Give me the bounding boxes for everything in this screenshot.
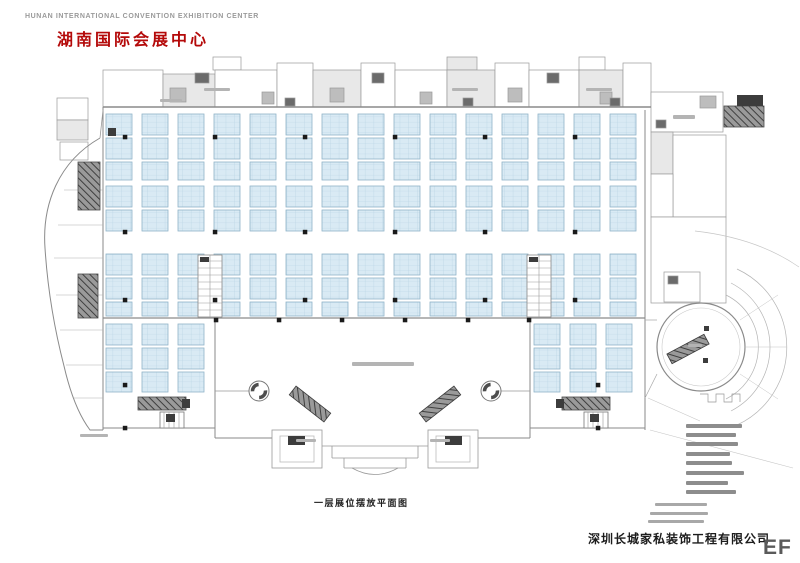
booth-block [322, 254, 348, 275]
chinese-title: 湖南国际会展中心 [57, 26, 209, 50]
booth-block [610, 210, 636, 231]
watermark-text: EF [763, 536, 792, 560]
booth-block [534, 348, 560, 369]
booth-block [286, 210, 312, 231]
fixture [737, 95, 763, 106]
booth-block [178, 186, 204, 207]
room [330, 88, 344, 102]
legend-note-line [686, 433, 736, 437]
pillar [596, 426, 601, 431]
pillar [303, 135, 308, 140]
pillar [213, 135, 218, 140]
booth-block [250, 254, 276, 275]
booth-block [142, 210, 168, 231]
pillar [123, 230, 128, 235]
booth-block [606, 324, 632, 345]
booth-block [178, 324, 204, 345]
room [57, 98, 88, 120]
room [195, 73, 209, 83]
small-stairs [160, 412, 608, 428]
booth-block [142, 114, 168, 135]
booth-block [430, 138, 456, 159]
booth-block [142, 162, 168, 180]
booth-block [610, 114, 636, 135]
booth-block [142, 278, 168, 299]
booth-block [430, 254, 456, 275]
pillar [527, 318, 532, 323]
pillar [213, 298, 218, 303]
pillar [466, 318, 471, 323]
booth-block [178, 210, 204, 231]
illegible-label [80, 434, 108, 437]
booth-block [142, 324, 168, 345]
booth-block [286, 138, 312, 159]
illegible-label [430, 439, 450, 442]
booth-block [214, 114, 240, 135]
booth-block [534, 372, 560, 392]
room [651, 132, 673, 174]
booth-block [606, 348, 632, 369]
booth-block [250, 186, 276, 207]
english-title: HUNAN INTERNATIONAL CONVENTION EXHIBITIO… [25, 13, 259, 20]
booth-block [286, 278, 312, 299]
booth-block [570, 324, 596, 345]
booth-block [286, 186, 312, 207]
booth-block [322, 114, 348, 135]
booth-block [106, 138, 132, 159]
room [579, 57, 605, 70]
illegible-label [296, 439, 316, 442]
room [651, 174, 673, 217]
footer-note-line [650, 512, 708, 515]
room [60, 142, 88, 160]
escalator-icon [289, 386, 330, 422]
booth-block [142, 138, 168, 159]
room [673, 135, 726, 217]
booth-block [502, 162, 528, 180]
booth-block [106, 254, 132, 275]
legend-note-line [686, 490, 736, 494]
pillar [403, 318, 408, 323]
room [420, 92, 432, 104]
booth-block [502, 138, 528, 159]
booth-block [106, 324, 132, 345]
booth-block [358, 114, 384, 135]
pillar [573, 230, 578, 235]
booth-block [430, 210, 456, 231]
booth-block [394, 114, 420, 135]
booth-block [538, 114, 564, 135]
fixture [556, 399, 564, 408]
legend-note-line [686, 481, 728, 485]
booth-block [394, 302, 420, 316]
booth-block [466, 254, 492, 275]
room [262, 92, 274, 104]
booth-block [430, 162, 456, 180]
fixture [200, 257, 209, 262]
booth-block [250, 210, 276, 231]
drawing-caption: 一层展位摆放平面图 [314, 496, 409, 509]
booth-block [394, 210, 420, 231]
pillar [393, 230, 398, 235]
legend-note-line [686, 442, 738, 446]
booth-block [574, 210, 600, 231]
booth-block [358, 278, 384, 299]
booth-block [250, 138, 276, 159]
illegible-label [160, 99, 182, 102]
pillar [123, 383, 128, 388]
pillar [596, 383, 601, 388]
company-name: 深圳长城家私装饰工程有限公司 [588, 530, 770, 547]
pillar [277, 318, 282, 323]
floor-plan-drawing [0, 0, 800, 563]
pillar [483, 135, 488, 140]
pillar [123, 426, 128, 431]
booth-block [358, 254, 384, 275]
escalators [289, 334, 709, 422]
room [57, 120, 88, 140]
booth-block [250, 162, 276, 180]
booth-block [358, 162, 384, 180]
illegible-label [452, 88, 478, 91]
booth-block [430, 302, 456, 316]
room [103, 70, 163, 107]
booth-block [214, 186, 240, 207]
west-curved-wing [45, 110, 103, 430]
booth-block [250, 302, 276, 316]
footer-note-line [655, 503, 707, 506]
booth-block [142, 186, 168, 207]
booth-block [570, 372, 596, 392]
illegible-label [688, 344, 702, 347]
staircase-icon [78, 162, 100, 210]
booth-block [106, 186, 132, 207]
fixture [166, 414, 175, 422]
pillar [393, 135, 398, 140]
fixture [108, 128, 116, 136]
illegible-label [673, 115, 695, 119]
legend-note-line [686, 461, 732, 465]
booth-block [574, 138, 600, 159]
booth-block [538, 210, 564, 231]
booth-block [538, 186, 564, 207]
staircase-icon [138, 397, 186, 410]
booth-block [286, 162, 312, 180]
booth-block [106, 348, 132, 369]
booth-block [502, 114, 528, 135]
room [623, 63, 651, 107]
booth-block [394, 278, 420, 299]
booth-block [358, 138, 384, 159]
booth-block [358, 210, 384, 231]
booth-block [574, 254, 600, 275]
booth-block [502, 302, 528, 316]
staircase-icon [78, 274, 98, 318]
booth-block [466, 162, 492, 180]
plaza-steps [700, 394, 740, 402]
booth-block [502, 210, 528, 231]
booth-block [106, 278, 132, 299]
pillar [483, 298, 488, 303]
room [447, 57, 477, 70]
booth-block [466, 210, 492, 231]
room [372, 73, 384, 83]
fixture [182, 399, 190, 408]
booth-block [106, 372, 132, 392]
illegible-label [204, 88, 230, 91]
booth-block [538, 138, 564, 159]
booth-block [322, 162, 348, 180]
booth-block [466, 302, 492, 316]
booth-block [250, 278, 276, 299]
pillar [340, 318, 345, 323]
booth-block [574, 302, 600, 316]
booth-block [106, 162, 132, 180]
pillar [483, 230, 488, 235]
booth-block [538, 162, 564, 180]
booth-block [142, 254, 168, 275]
booth-block [322, 138, 348, 159]
booth-block [534, 324, 560, 345]
booth-block [214, 162, 240, 180]
legend-note-line [686, 452, 730, 456]
fixture [704, 326, 709, 331]
booth-block [322, 210, 348, 231]
booth-block [286, 114, 312, 135]
booth-block [178, 162, 204, 180]
booth-block [430, 278, 456, 299]
room [656, 120, 666, 128]
booth-block [610, 138, 636, 159]
room [285, 98, 295, 106]
illegible-label [352, 362, 414, 366]
staircase-icon [724, 106, 764, 127]
booth-block [322, 186, 348, 207]
booth-block [430, 114, 456, 135]
booth-block [322, 278, 348, 299]
footer-note-line [648, 520, 704, 523]
booth-block [106, 302, 132, 316]
fixture [590, 414, 599, 422]
booth-block [250, 114, 276, 135]
booth-block [394, 138, 420, 159]
pillar [303, 298, 308, 303]
booth-block [178, 372, 204, 392]
booth-block [358, 302, 384, 316]
booth-block [214, 138, 240, 159]
booth-block [466, 278, 492, 299]
booth-block [286, 302, 312, 316]
booth-block [610, 278, 636, 299]
booth-block [394, 186, 420, 207]
illegible-label [586, 88, 612, 91]
room [700, 96, 716, 108]
booth-block [214, 210, 240, 231]
room [508, 88, 522, 102]
pillar [573, 135, 578, 140]
pillar [123, 135, 128, 140]
booth-block [322, 302, 348, 316]
booth-block [574, 114, 600, 135]
booth-block [142, 302, 168, 316]
booth-block [570, 348, 596, 369]
booth-block [466, 138, 492, 159]
booth-block [178, 138, 204, 159]
booth-block [430, 186, 456, 207]
room [547, 73, 559, 83]
booth-block [466, 186, 492, 207]
escalator-icon [419, 386, 460, 422]
booth-block [574, 186, 600, 207]
booth-block [466, 114, 492, 135]
legend-note-line [686, 424, 742, 428]
legend-note-line [686, 471, 744, 475]
booth-block [178, 348, 204, 369]
booth-block [502, 186, 528, 207]
room [361, 63, 395, 107]
exhibition-booth-grid [106, 114, 636, 392]
floor-plan-page: HUNAN INTERNATIONAL CONVENTION EXHIBITIO… [0, 0, 800, 563]
booth-block [610, 302, 636, 316]
booth-block [610, 162, 636, 180]
pillar [393, 298, 398, 303]
pillar [123, 298, 128, 303]
pillar [214, 318, 219, 323]
pillar [303, 230, 308, 235]
booth-block [606, 372, 632, 392]
pillar [573, 298, 578, 303]
fixture [703, 358, 708, 363]
room [463, 98, 473, 106]
booth-block [142, 372, 168, 392]
pillar [213, 230, 218, 235]
booth-block [574, 162, 600, 180]
booth-block [574, 278, 600, 299]
booth-block [286, 254, 312, 275]
booth-block [358, 186, 384, 207]
room [668, 276, 678, 284]
room [213, 57, 241, 70]
booth-block [106, 210, 132, 231]
booth-block [394, 254, 420, 275]
booth-block [502, 254, 528, 275]
booth-block [178, 114, 204, 135]
booth-block [502, 278, 528, 299]
booth-block [610, 186, 636, 207]
room [610, 98, 620, 106]
staircase-icon [562, 397, 610, 410]
booth-block [142, 348, 168, 369]
fixture [529, 257, 538, 262]
booth-block [394, 162, 420, 180]
booth-block [610, 254, 636, 275]
lobby-circular-features [249, 381, 501, 401]
